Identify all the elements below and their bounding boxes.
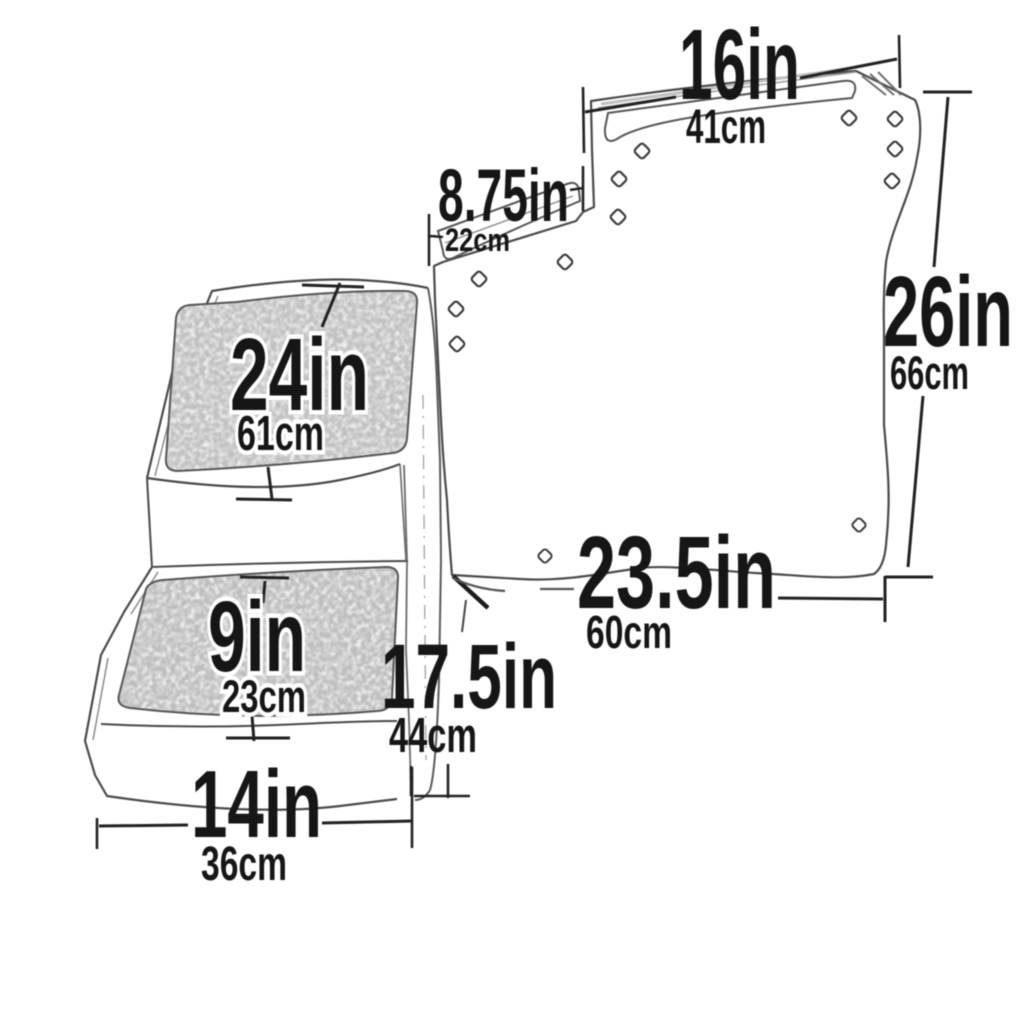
svg-text:60cm: 60cm (586, 606, 672, 658)
svg-text:66cm: 66cm (890, 346, 969, 399)
svg-text:23cm: 23cm (222, 671, 306, 722)
svg-text:41cm: 41cm (686, 101, 766, 154)
svg-text:22cm: 22cm (445, 222, 510, 258)
svg-text:44cm: 44cm (389, 709, 477, 763)
svg-text:36cm: 36cm (201, 838, 287, 891)
svg-text:61cm: 61cm (237, 407, 324, 461)
